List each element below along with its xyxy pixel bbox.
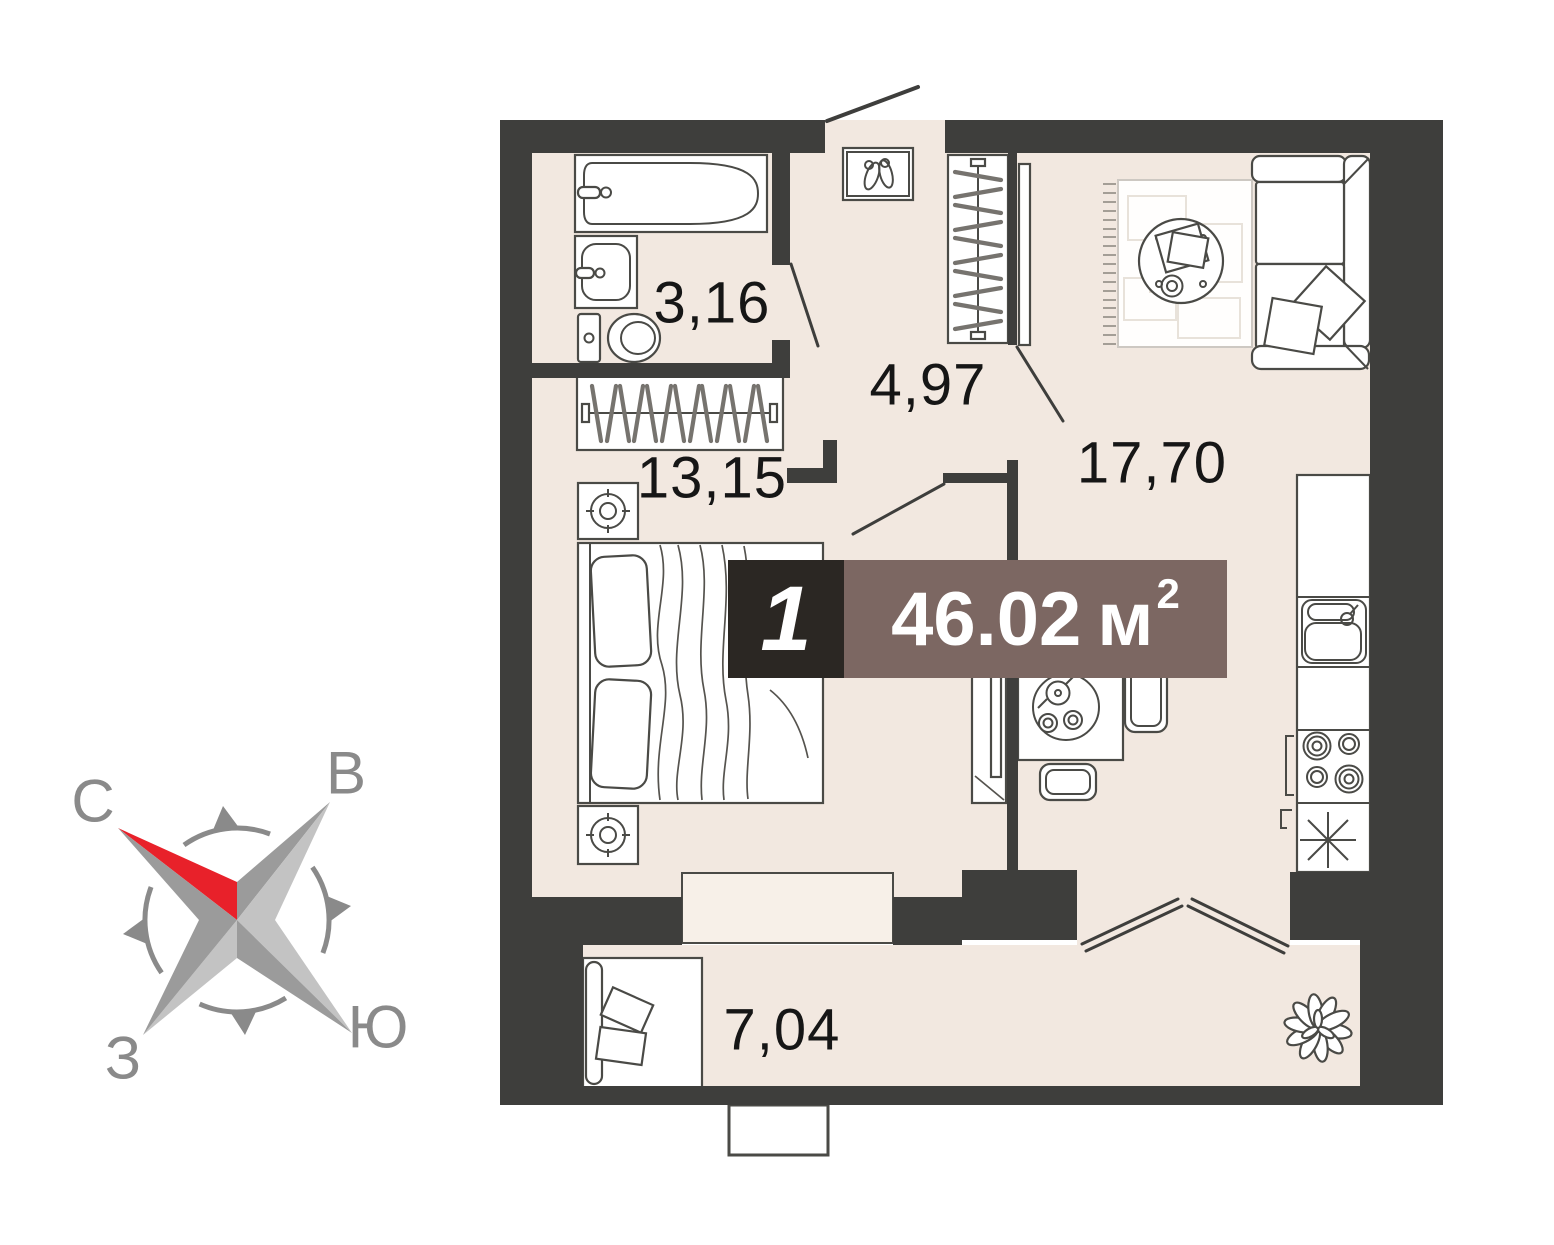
compass-letter-south: Ю: [348, 993, 409, 1062]
coffee-table: [1139, 219, 1223, 303]
wall-bedroom-top-a: [787, 468, 837, 483]
balcony-window: [682, 873, 893, 943]
wall-bottom-2: [893, 897, 962, 945]
bathtub: [575, 155, 767, 232]
wall-bathroom-bottom: [532, 363, 790, 378]
entrance-door: [827, 87, 918, 121]
nightstand-lamp-bottom: [578, 806, 638, 864]
balcony-drain-box: [729, 1105, 828, 1155]
shoe-cabinet: [843, 148, 913, 200]
pillow: [590, 679, 652, 790]
compass-letter-west: З: [105, 1024, 141, 1093]
wall-right: [1370, 120, 1443, 940]
balcony-bench: [583, 958, 702, 1088]
sofa-pillow: [1264, 298, 1322, 354]
compass-spike-s: [229, 1009, 257, 1035]
compass-spike-w: [123, 917, 149, 945]
compass-spike-n: [212, 806, 240, 832]
compass-letter-east: В: [326, 739, 366, 808]
floorplan-page: 3,16 4,97 17,70 13,15 7,04 1 46.02 м 2 С…: [0, 0, 1554, 1245]
wall-left: [500, 120, 532, 943]
wall-bottom-3: [962, 870, 1077, 940]
toilet: [578, 314, 660, 362]
nightstand-lamp-top: [578, 483, 638, 539]
area-badge: 1 46.02 м 2: [728, 560, 1227, 678]
room-label-balcony: 7,04: [724, 997, 841, 1064]
bedroom-wardrobe: [577, 375, 783, 450]
wall-balcony-right: [1360, 940, 1443, 1105]
hall-closet: [948, 155, 1008, 343]
bench-pillow: [596, 1027, 646, 1065]
wall-bottom-1: [500, 897, 682, 945]
badge-area-unit: м: [1097, 576, 1153, 663]
compass-arc-n: [184, 828, 270, 845]
room-label-bathroom: 3,16: [654, 270, 771, 337]
wall-top-right: [945, 120, 1443, 153]
compass-rose: [118, 802, 352, 1035]
dining-chair-bottom: [1040, 764, 1096, 800]
sofa: [1252, 156, 1370, 369]
room-label-bedroom: 13,15: [637, 445, 787, 512]
wall-balcony-left: [500, 943, 583, 1105]
compass-letter-north: С: [71, 767, 114, 836]
badge-room-count: 1: [728, 560, 844, 678]
badge-area-superscript: 2: [1157, 570, 1180, 618]
badge-area-value: 46.02: [891, 576, 1081, 663]
bathroom-sink: [575, 236, 637, 308]
wall-top-left: [500, 120, 825, 153]
wall-closet: [1008, 153, 1017, 345]
wall-balcony-bottom: [583, 1086, 1360, 1105]
room-label-hallway: 4,97: [870, 352, 987, 419]
room-label-living-room: 17,70: [1077, 430, 1227, 497]
compass-spike-e: [325, 895, 351, 923]
wall-bottom-4: [1290, 872, 1443, 940]
badge-area: 46.02 м 2: [844, 560, 1227, 678]
wall-bathroom-right: [772, 153, 790, 265]
wall-bedroom-top-b: [943, 473, 1017, 483]
kitchen-counter: [1297, 475, 1370, 872]
pillow: [590, 555, 652, 668]
